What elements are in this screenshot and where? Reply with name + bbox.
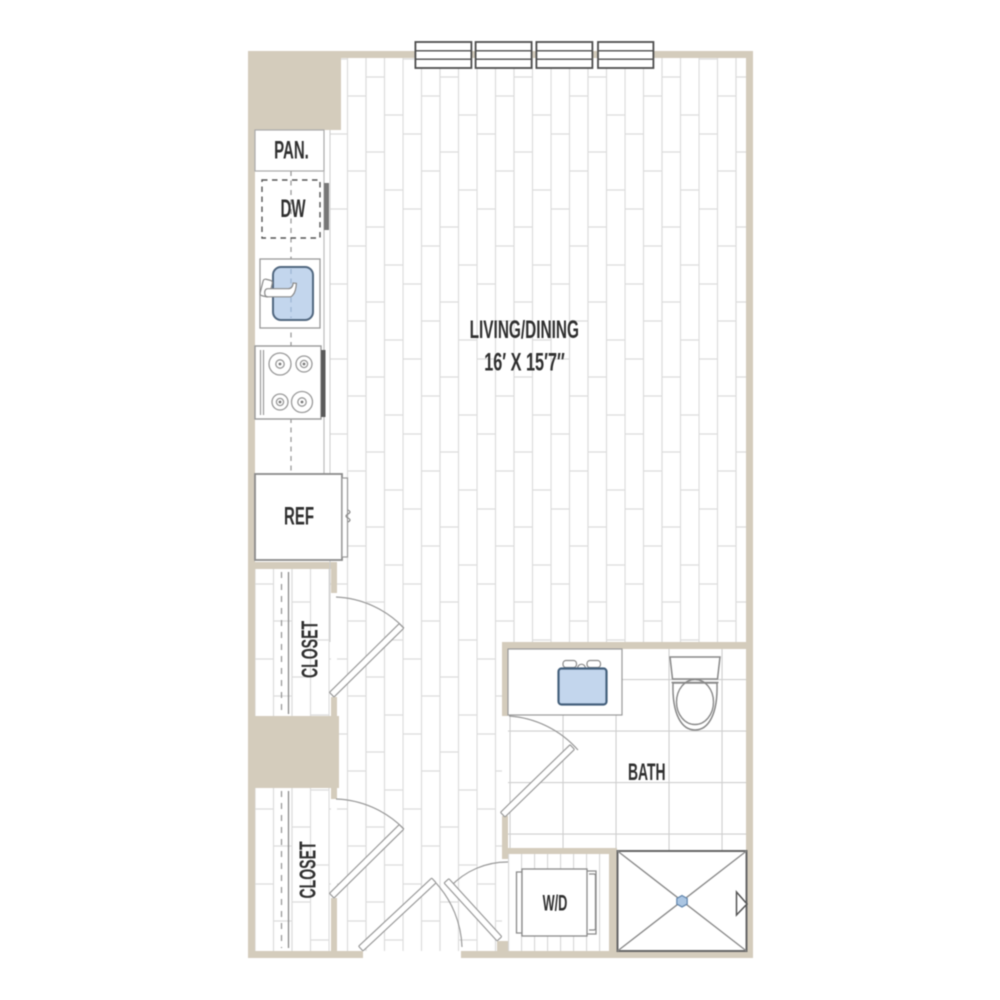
svg-text:BATH: BATH [628,759,666,786]
svg-text:CLOSET: CLOSET [297,621,324,678]
svg-text:CLOSET: CLOSET [295,841,322,898]
svg-text:W/D: W/D [543,891,568,915]
svg-text:REF: REF [284,503,314,531]
svg-text:16′ X 15′7″: 16′ X 15′7″ [484,349,565,376]
svg-text:LIVING/DINING: LIVING/DINING [470,316,579,344]
svg-text:PAN.: PAN. [274,137,309,165]
svg-text:DW: DW [281,195,306,223]
